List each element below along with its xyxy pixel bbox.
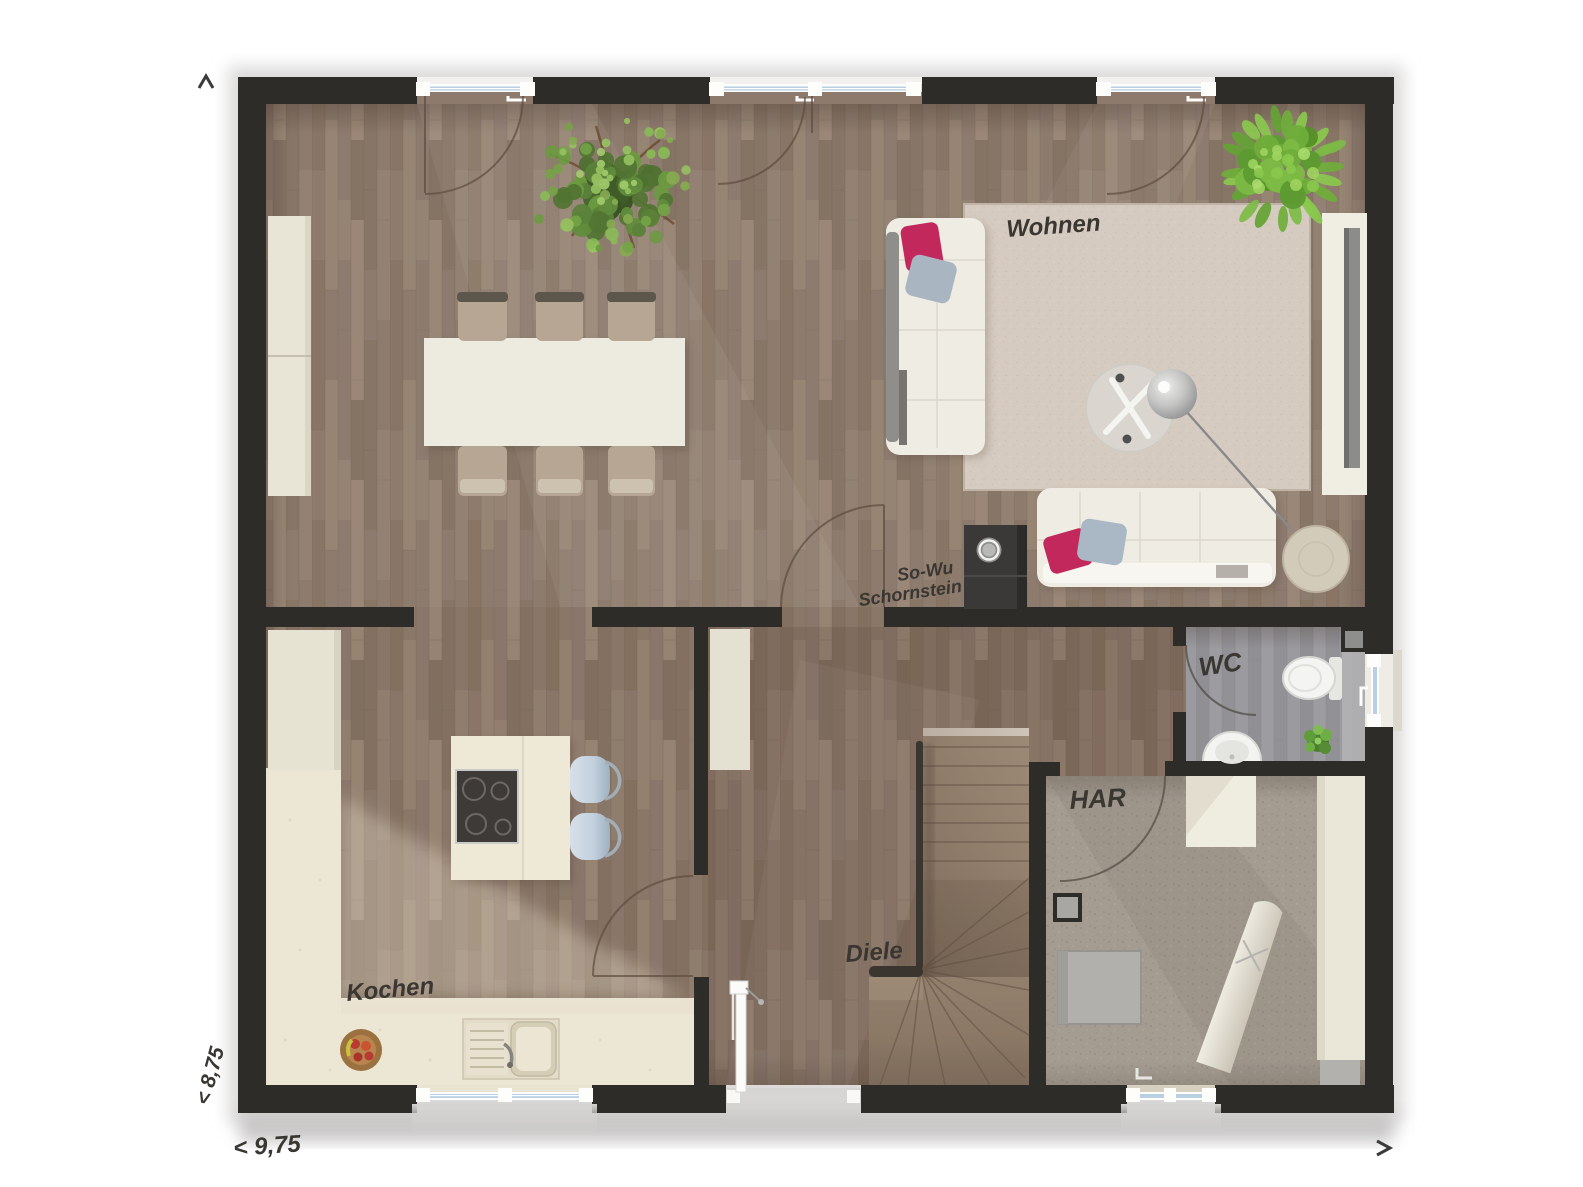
- svg-text:WC: WC: [1197, 646, 1245, 682]
- svg-text:< 9,75: < 9,75: [233, 1130, 303, 1162]
- svg-text:Diele: Diele: [845, 937, 904, 968]
- svg-text:HAR: HAR: [1069, 782, 1127, 815]
